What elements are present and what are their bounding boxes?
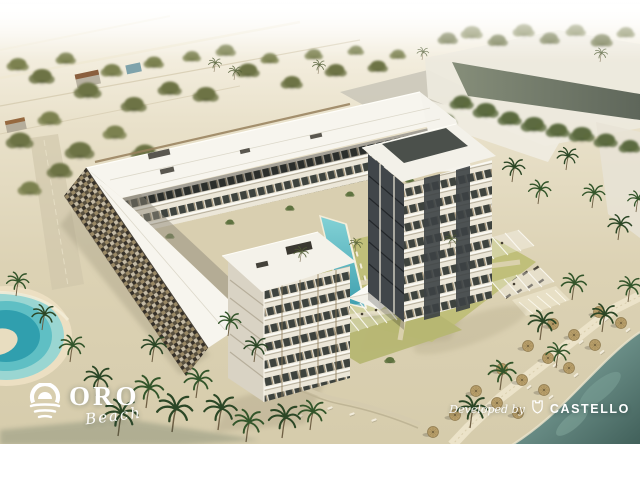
developer-credit-prefix: Developed by (449, 403, 525, 416)
render-canvas: ORO Beach Developed by CASTELLO (0, 0, 640, 480)
front-left-tower (222, 232, 356, 402)
developer-credit: Developed by CASTELLO (449, 399, 630, 419)
horizon-fade (0, 0, 640, 62)
render-artwork (0, 0, 640, 445)
developer-wordmark: CASTELLO (550, 402, 630, 416)
resort-aerial-render (0, 0, 640, 445)
right-tower (362, 124, 496, 330)
oro-beach-logo: ORO Beach (28, 383, 142, 430)
castle-shield-icon (531, 399, 544, 419)
sun-waves-icon (28, 383, 62, 430)
bottom-white-band (0, 444, 640, 480)
